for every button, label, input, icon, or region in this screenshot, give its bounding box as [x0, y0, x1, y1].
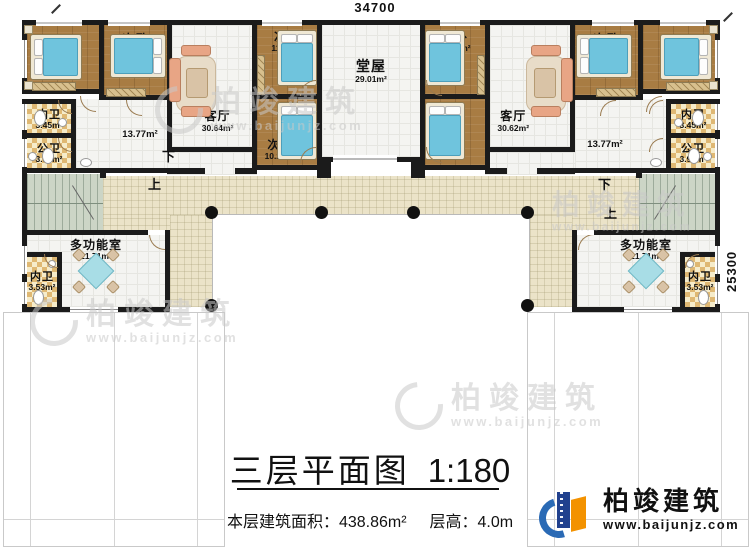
- bed: [576, 34, 632, 78]
- company-logo-text: 柏竣建筑 www.baijunjz.com: [603, 486, 739, 532]
- drawing-scale: 1:180: [428, 452, 511, 490]
- pillow: [699, 58, 708, 76]
- pillow: [281, 34, 297, 43]
- wall-segment: [715, 170, 720, 235]
- company-logo: 柏竣建筑 www.baijunjz.com: [537, 486, 739, 544]
- pillow: [580, 38, 589, 55]
- ground-line: [114, 313, 115, 546]
- window: [592, 20, 634, 26]
- wall-segment: [167, 168, 205, 174]
- dimension-tick: [723, 12, 733, 22]
- toilet: [34, 110, 46, 126]
- column: [521, 206, 534, 219]
- nightstand: [709, 25, 718, 34]
- company-url: www.baijunjz.com: [603, 517, 739, 532]
- room-label: 客厅30.62m²: [490, 110, 536, 133]
- sink: [58, 118, 67, 127]
- column: [315, 206, 328, 219]
- wall-segment: [537, 168, 575, 174]
- room-label: 内卫3.53m²: [685, 271, 715, 292]
- sofa-chair: [531, 106, 561, 117]
- sofa-chair: [181, 45, 211, 56]
- wardrobe: [257, 55, 265, 95]
- window: [22, 40, 27, 78]
- drawing-title-text: 三层平面图: [230, 444, 410, 492]
- wardrobe: [106, 88, 146, 97]
- dimension-width: 34700: [305, 0, 445, 15]
- window: [22, 139, 27, 167]
- floor-area-value: 438.86m²: [339, 514, 407, 531]
- logo-tower-orange: [571, 496, 586, 532]
- floor-area-label: 本层建筑面积：: [227, 514, 339, 531]
- pillow: [429, 34, 445, 43]
- pillow: [281, 106, 297, 115]
- wall-segment: [636, 168, 642, 178]
- terrace-right-strip: [530, 215, 572, 307]
- floor-info: 本层建筑面积：438.86m² 层高：4.0m: [160, 508, 580, 532]
- wall-segment: [100, 168, 106, 178]
- company-logo-icon: [537, 486, 595, 544]
- room-label: 堂屋29.01m²: [322, 59, 420, 84]
- pillow: [580, 57, 589, 74]
- sofa-chair: [181, 106, 211, 117]
- bed: [30, 34, 82, 80]
- toilet: [33, 290, 44, 305]
- window: [715, 246, 720, 274]
- sink: [28, 152, 37, 161]
- window: [22, 246, 27, 274]
- staircase-right: [639, 174, 715, 232]
- coffee-table: [534, 68, 556, 98]
- coffee-table: [186, 68, 208, 98]
- pillow: [34, 39, 43, 57]
- room-label: 内卫3.53m²: [27, 271, 57, 292]
- watermark-logo-icon: [385, 372, 453, 440]
- door-opening: [577, 230, 594, 235]
- wardrobe: [477, 55, 485, 95]
- corridor-left-label: 13.77m²: [110, 130, 170, 140]
- stair-down-label-left: 下: [162, 146, 175, 165]
- mattress: [589, 38, 628, 74]
- sofa-chair: [531, 45, 561, 56]
- toilet: [692, 110, 704, 126]
- terrace-band: [103, 176, 639, 215]
- column: [205, 299, 218, 312]
- floor-height-value: 4.0m: [477, 514, 513, 531]
- stair-up-label-left: 上: [148, 174, 161, 193]
- wall-segment: [485, 168, 507, 174]
- courtyard-edge: [212, 214, 530, 215]
- stair-rail: [27, 203, 103, 204]
- sink: [674, 118, 683, 127]
- basin: [650, 158, 662, 167]
- pillow: [445, 34, 461, 43]
- mattress: [114, 38, 153, 74]
- pillow: [429, 106, 445, 115]
- window: [108, 20, 150, 26]
- pillow: [297, 34, 313, 43]
- nightstand: [24, 25, 33, 34]
- wall-segment: [575, 168, 666, 173]
- window: [715, 139, 720, 167]
- courtyard-edge: [212, 214, 213, 307]
- wall-segment: [22, 170, 27, 235]
- toilet: [688, 148, 700, 164]
- sink: [703, 152, 712, 161]
- logo-tower-navy: [557, 492, 570, 528]
- mattress: [281, 43, 313, 82]
- window: [70, 307, 118, 312]
- dimension-depth: 25300: [724, 222, 739, 292]
- pillow: [699, 39, 708, 57]
- company-name: 柏竣建筑: [603, 486, 739, 517]
- window: [262, 20, 302, 26]
- floor-plan-canvas: 主卧16.11m² 次卧11.88m² 客厅30.64m² 次卧11.51m² …: [0, 0, 750, 557]
- title-underline: [237, 488, 499, 490]
- bed: [660, 34, 712, 80]
- hall-door-stub: [411, 160, 425, 178]
- corridor-right-label: 13.77m²: [575, 140, 635, 150]
- bed: [277, 30, 317, 86]
- door-opening: [148, 230, 165, 235]
- stair-rail: [639, 203, 715, 204]
- room-main-hall: 堂屋29.01m²: [317, 20, 425, 162]
- window: [715, 40, 720, 78]
- column: [407, 206, 420, 219]
- column: [205, 206, 218, 219]
- window: [22, 282, 27, 304]
- hall-door-stub: [317, 160, 331, 178]
- window: [715, 104, 720, 130]
- hall-door-threshold: [333, 158, 397, 160]
- window: [22, 104, 27, 130]
- floor-height-label: 层高：: [429, 514, 477, 531]
- mattress: [664, 38, 699, 76]
- wall-segment: [76, 168, 167, 173]
- pillow: [445, 106, 461, 115]
- sofa: [561, 58, 573, 102]
- wardrobe: [666, 82, 710, 91]
- mattress: [43, 38, 78, 76]
- stair-down-label-right: 下: [598, 174, 611, 193]
- drawing-title: 三层平面图 1:180: [190, 444, 550, 492]
- wardrobe: [596, 88, 636, 97]
- terrace-left-strip: [170, 215, 212, 307]
- window: [624, 307, 672, 312]
- ground-line: [30, 313, 31, 546]
- pillow: [34, 58, 43, 76]
- wall-segment: [235, 168, 257, 174]
- bed: [110, 34, 166, 78]
- pillow: [297, 106, 313, 115]
- basin: [80, 158, 92, 167]
- window: [660, 20, 706, 26]
- wardrobe: [32, 82, 76, 91]
- nightstand: [709, 81, 718, 90]
- toilet: [698, 290, 709, 305]
- dimension-tick: [51, 4, 61, 14]
- window: [440, 20, 480, 26]
- window: [36, 20, 82, 26]
- sofa: [169, 58, 181, 102]
- pillow: [153, 38, 162, 55]
- courtyard-edge: [529, 214, 530, 307]
- bed: [425, 30, 465, 86]
- toilet: [42, 148, 54, 164]
- window: [715, 282, 720, 304]
- pillow: [153, 57, 162, 74]
- stair-up-label-right: 上: [604, 203, 617, 222]
- staircase-left: [27, 174, 103, 232]
- nightstand: [24, 81, 33, 90]
- column: [521, 299, 534, 312]
- mattress: [429, 43, 461, 82]
